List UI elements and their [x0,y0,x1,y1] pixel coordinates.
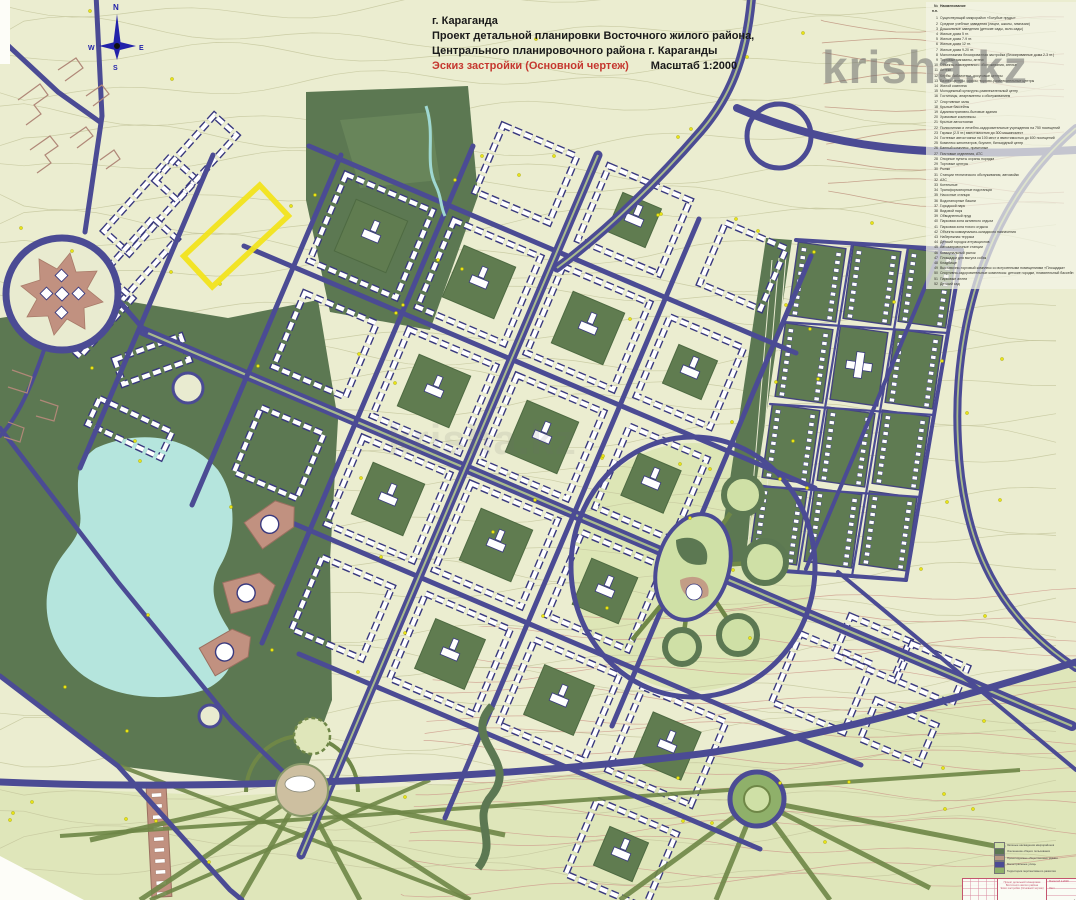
yellow-dot [19,226,22,229]
yellow-dot [730,420,733,423]
title-subtitle: Эскиз застройки (Основной чертеж) [432,60,629,72]
stamp-revision-cells [963,879,998,900]
yellow-dot [256,364,259,367]
yellow-dot [533,498,536,501]
city-block [872,410,930,490]
yellow-dot [480,154,483,157]
yellow-dot [892,300,895,303]
yellow-dot [808,327,811,330]
yellow-dot [656,213,659,216]
yellow-dot [756,229,759,232]
yellow-dot [710,821,713,824]
yellow-dot [778,477,781,480]
small-plaza-2 [199,705,221,727]
yellow-dot [541,614,544,617]
yellow-dot [942,792,945,795]
compass-s: S [113,65,118,72]
yellow-dot [359,476,362,479]
map-canvas: N W E S [0,0,1076,900]
title-line1: Проект детальной планировки Восточного ж… [432,29,754,44]
yellow-dot [605,606,608,609]
yellow-dot [778,781,781,784]
city-block [788,242,846,322]
yellow-dot [943,807,946,810]
yellow-dot [436,258,439,261]
yellow-dot [70,249,73,252]
yellow-dot [8,818,11,821]
yellow-dot [801,31,804,34]
yellow-dot [731,568,734,571]
yellow-dot [748,636,751,639]
compass-w: W [88,45,95,52]
yellow-dot [945,500,948,503]
yellow-dot [11,811,14,814]
yellow-dot [169,270,172,273]
yellow-dot [125,729,128,732]
park-hub-west [276,764,328,816]
yellow-dot [982,719,985,722]
compass-n: N [113,3,119,12]
yellow-dot [401,303,404,306]
compass-e: E [139,45,144,52]
city-block [775,323,833,403]
yellow-dot [689,127,692,130]
bottom-right-plaza [730,772,784,826]
yellow-dot [154,819,157,822]
yellow-dot [124,817,127,820]
mini-legend: Зеленые насаждения микрорайоновОзеленени… [994,842,1076,874]
list-item: 52Детский сад [928,282,1076,287]
yellow-dot [289,204,292,207]
yellow-dot [708,467,711,470]
yellow-dot [460,267,463,270]
yellow-dot [63,685,66,688]
yellow-dot [628,317,631,320]
legend-list: 1Существующий микрорайон «Голубые пруды»… [928,16,1076,287]
stamp-scale: Масштаб 1:2000 [1049,880,1069,883]
title-scale: Масштаб 1:2000 [651,60,737,72]
yellow-dot [453,178,456,181]
list-item: Территория перспективного развития [994,868,1076,874]
yellow-dot [870,221,873,224]
yellow-dot [170,77,173,80]
yellow-dot [403,631,406,634]
yellow-dot [659,212,662,215]
yellow-dot [971,807,974,810]
yellow-dot [491,530,494,533]
yellow-dot [983,614,986,617]
yellow-dot [734,217,737,220]
yellow-dot [403,795,406,798]
yellow-dot [133,439,136,442]
legend-header-name: Наименование [940,4,966,14]
yellow-dot [998,498,1001,501]
yellow-dot [90,366,93,369]
title-block-stamp: Проект детальной планировки Восточного ж… [962,878,1076,900]
title-city: г. Караганда [432,14,754,29]
yellow-dot [847,780,850,783]
yellow-dot [207,860,210,863]
yellow-dot [30,800,33,803]
stamp-stage: Эскиз застройки (Основной чертеж) [999,887,1045,890]
yellow-dot [816,377,819,380]
yellow-dot [965,411,968,414]
yellow-dot [681,819,684,822]
yellow-dot [146,613,149,616]
city-block [843,245,901,325]
title-line2: Центрального планировочного района г. Ка… [432,44,754,59]
plan-drawing-stage: N W E S г. Караганда Проект детальной пл… [0,0,1076,900]
yellow-dot [678,462,681,465]
yellow-dot [138,459,141,462]
legend-panel: № п.п. Наименование 1Существующий микрор… [926,2,1076,289]
yellow-dot [517,173,520,176]
yellow-dot [941,766,944,769]
legend-header-num: № п.п. [928,4,938,14]
drawing-title: г. Караганда Проект детальной планировки… [432,14,754,74]
park-circle [294,718,330,754]
yellow-dot [823,840,826,843]
yellow-dot [676,776,679,779]
yellow-dot [791,439,794,442]
city-block [885,329,943,409]
yellow-dot [919,567,922,570]
yellow-dot [229,505,232,508]
small-plaza-1 [173,373,203,403]
yellow-dot [356,670,359,673]
yellow-dot [313,193,316,196]
yellow-dot [940,359,943,362]
yellow-dot [393,381,396,384]
yellow-dot [688,516,691,519]
yellow-dot [394,311,397,314]
yellow-dot [270,648,273,651]
yellow-dot [357,352,360,355]
yellow-dot [379,555,382,558]
yellow-dot [88,9,91,12]
yellow-dot [676,135,679,138]
yellow-dot [805,486,808,489]
yellow-dot [774,380,777,383]
yellow-dot [601,454,604,457]
yellow-dot [552,154,555,157]
yellow-dot [1000,357,1003,360]
stamp-sheet: Лист [1049,887,1055,890]
yellow-dot [784,303,787,306]
yellow-dot [812,250,815,253]
city-block [762,404,820,484]
